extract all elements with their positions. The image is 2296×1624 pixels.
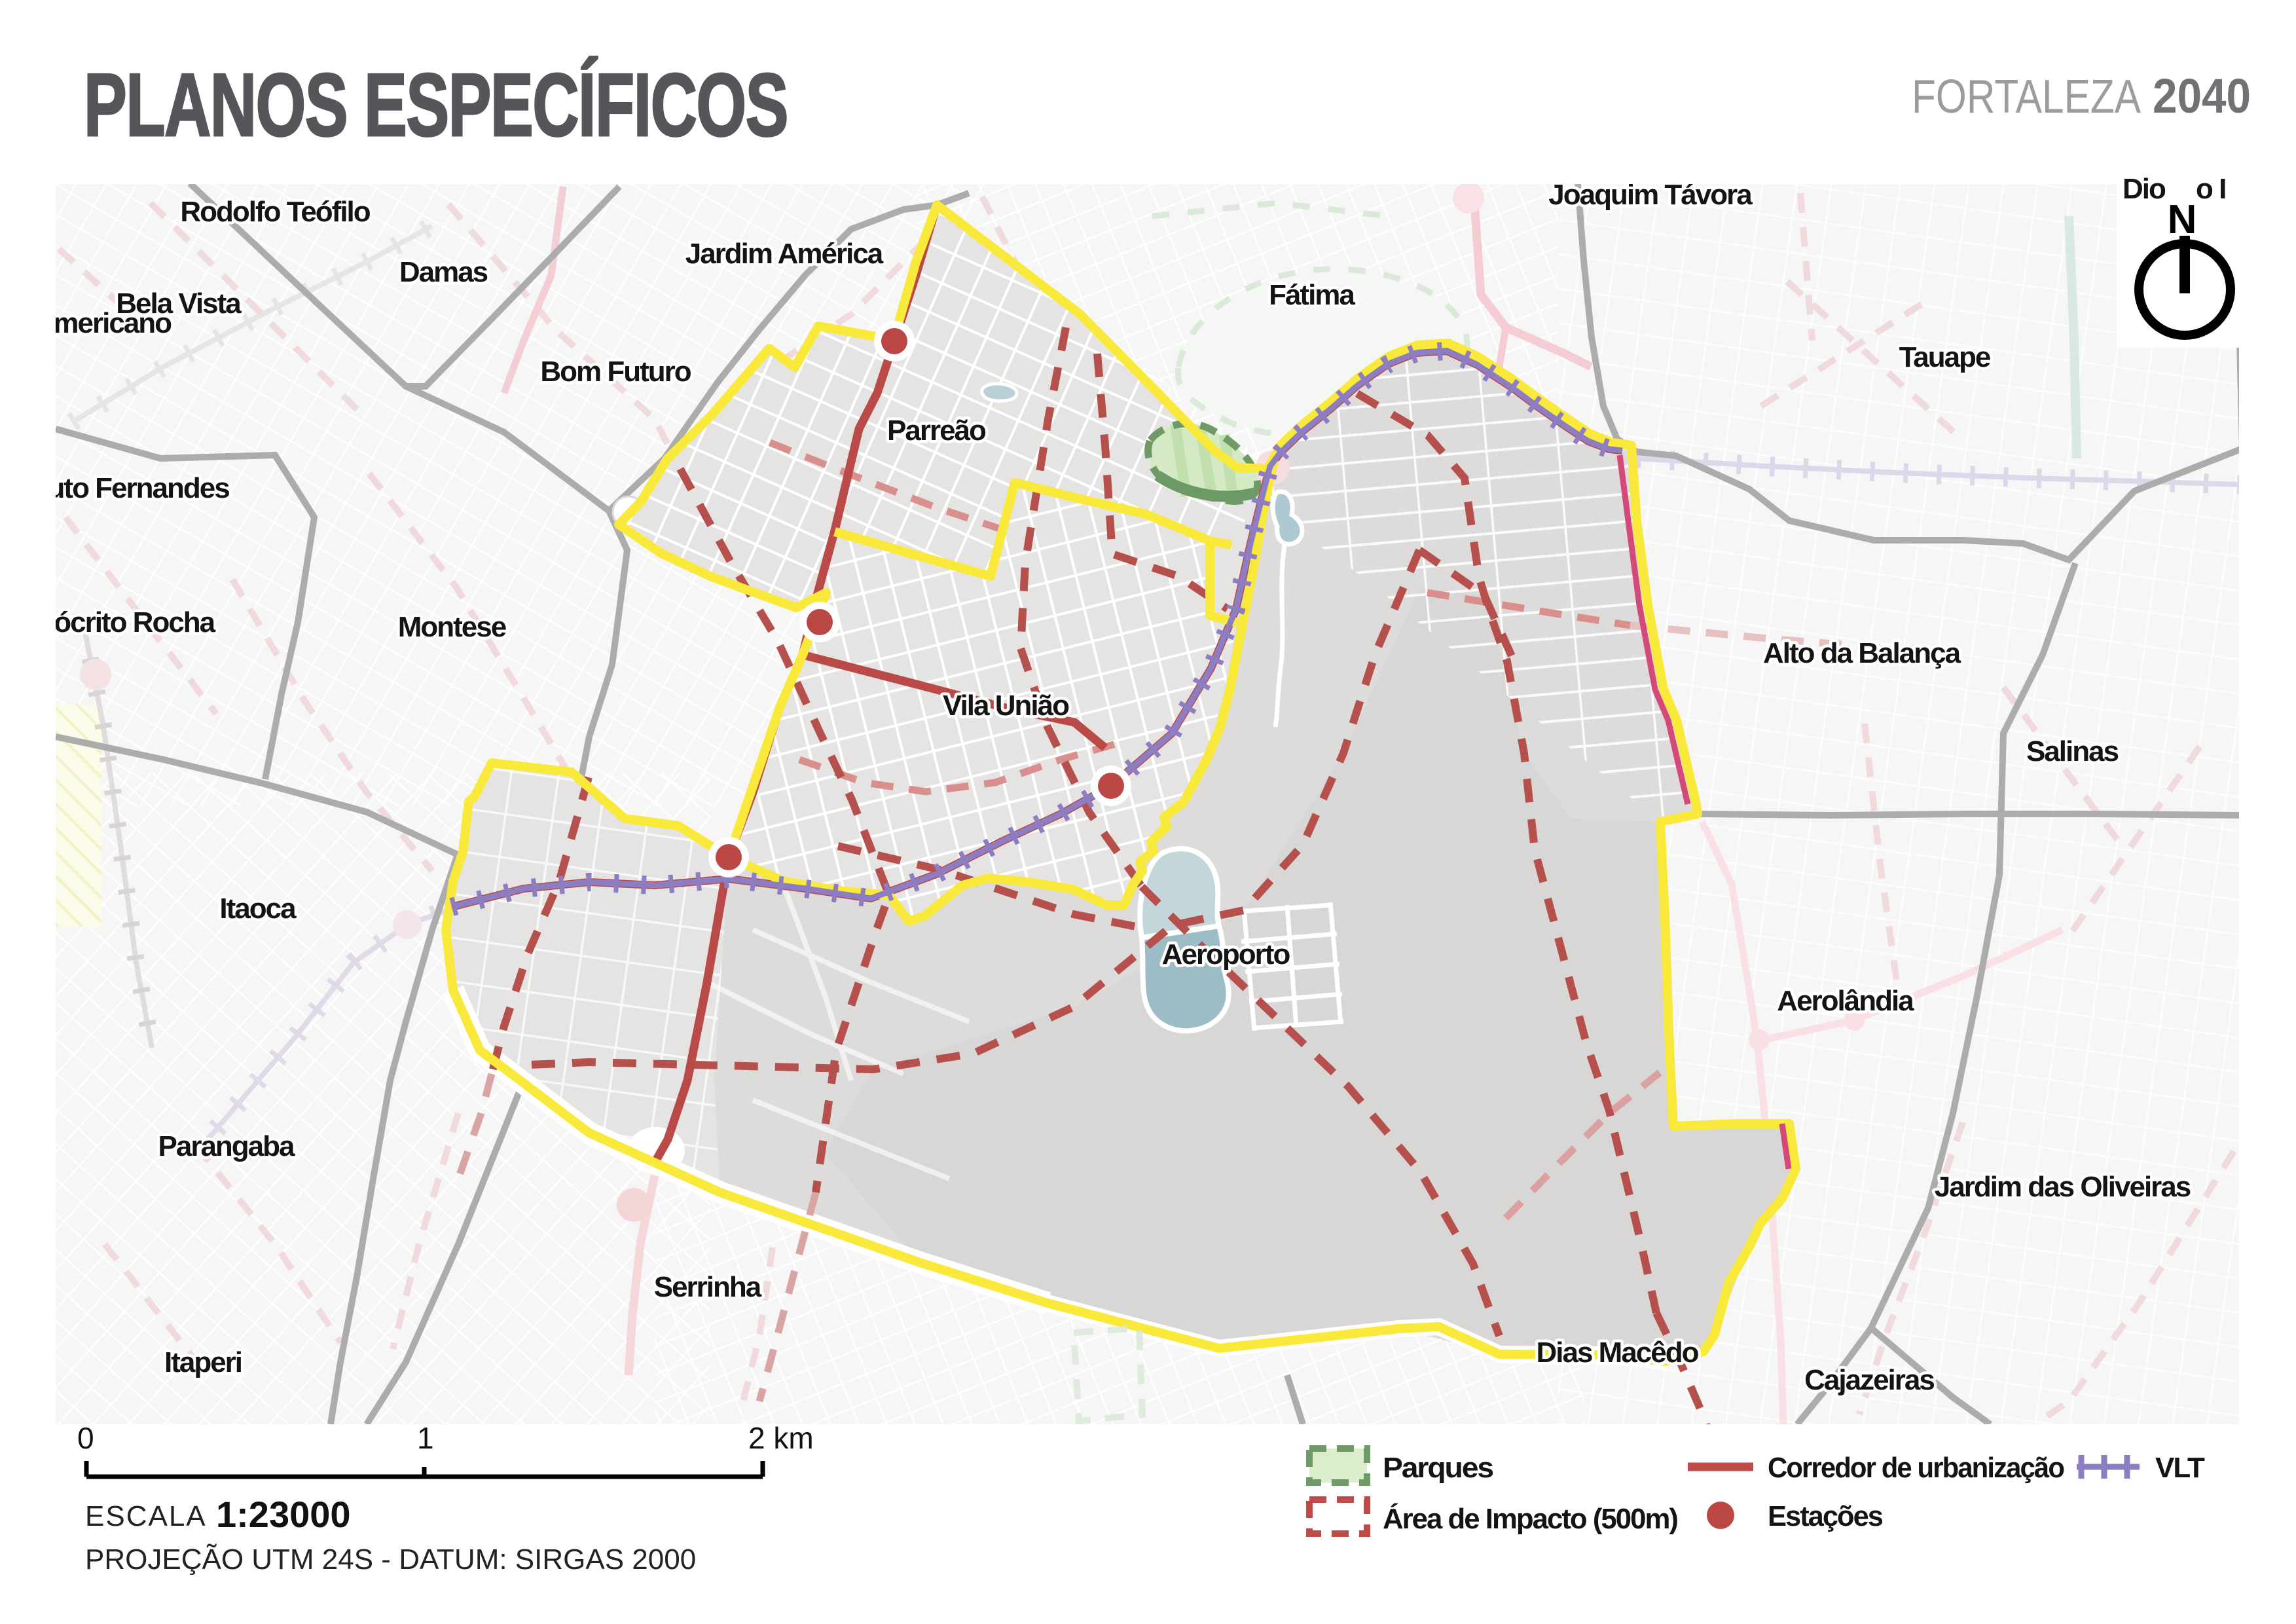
svg-text:1: 1 (417, 1421, 434, 1455)
svg-text:Jardim das Oliveiras: Jardim das Oliveiras (1935, 1171, 2191, 1203)
svg-text:0: 0 (77, 1421, 94, 1455)
svg-text:Aerolândia: Aerolândia (1777, 985, 1914, 1017)
svg-text:Damas: Damas (399, 256, 488, 288)
svg-text:Alto da Balança: Alto da Balança (1763, 637, 1961, 669)
svg-text:ESCALA: ESCALA (85, 1500, 207, 1532)
svg-text:Parques: Parques (1383, 1452, 1493, 1484)
svg-text:Vila União: Vila União (943, 690, 1069, 722)
svg-text:Dias Macêdo: Dias Macêdo (1537, 1337, 1699, 1369)
svg-text:Montese: Montese (398, 611, 506, 643)
svg-text:Bom Futuro: Bom Futuro (540, 356, 691, 388)
svg-text:Tauape: Tauape (1899, 341, 1990, 373)
svg-text:Estações: Estações (1768, 1500, 1883, 1532)
svg-text:VLT: VLT (2155, 1452, 2205, 1484)
svg-text:Serrinha: Serrinha (654, 1271, 762, 1303)
svg-text:Corredor de urbanização: Corredor de urbanização (1768, 1452, 2064, 1484)
svg-text:Fátima: Fátima (1269, 279, 1355, 311)
svg-text:N: N (2168, 197, 2197, 242)
svg-text:Itaoca: Itaoca (219, 893, 297, 925)
svg-text:FORTALEZA: FORTALEZA (1912, 71, 2141, 123)
svg-text:1:23000: 1:23000 (216, 1494, 351, 1535)
svg-text:americano: americano (39, 307, 172, 339)
svg-text:Cajazeiras: Cajazeiras (1804, 1364, 1934, 1396)
svg-text:Rodolfo Teófilo: Rodolfo Teófilo (180, 196, 370, 228)
svg-text:o I: o I (2196, 173, 2225, 205)
svg-text:Salinas: Salinas (2026, 735, 2119, 767)
svg-text:Aeroporto: Aeroporto (1162, 938, 1290, 970)
svg-text:Dio: Dio (2123, 173, 2166, 205)
svg-text:2040: 2040 (2153, 69, 2251, 123)
svg-text:Jardim América: Jardim América (685, 238, 884, 270)
svg-text:2 km: 2 km (748, 1421, 814, 1455)
svg-text:Parreão: Parreão (887, 415, 986, 447)
svg-text:PLANOS ESPECÍFICOS: PLANOS ESPECÍFICOS (84, 55, 788, 155)
svg-text:PROJEÇÃO UTM 24S - DATUM: SIRG: PROJEÇÃO UTM 24S - DATUM: SIRGAS 2000 (85, 1543, 696, 1576)
svg-text:Área de Impacto (500m): Área de Impacto (500m) (1383, 1502, 1677, 1535)
svg-text:Itaperi: Itaperi (164, 1346, 242, 1378)
svg-text:Parangaba: Parangaba (158, 1130, 296, 1162)
